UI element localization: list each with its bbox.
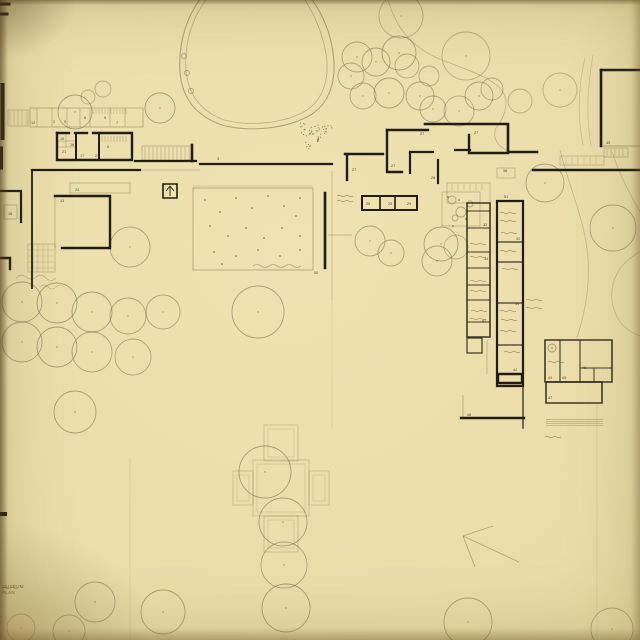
tree-center-dot bbox=[390, 252, 391, 253]
room-number-label: 21 bbox=[62, 150, 66, 154]
room-number-label: 46 bbox=[582, 366, 586, 370]
tree-center-dot bbox=[611, 628, 612, 629]
stipple-dot bbox=[311, 127, 312, 128]
pencil-rect bbox=[313, 475, 325, 501]
stipple-dot bbox=[327, 125, 328, 126]
annotations-layer: 1229897191821172362413163272727272826252… bbox=[2, 116, 610, 589]
pencil-rect bbox=[233, 471, 253, 505]
stipple-dot bbox=[311, 131, 312, 132]
pencil-path bbox=[180, 0, 334, 129]
room-number-label: 44 bbox=[548, 376, 552, 380]
handwritten-note bbox=[470, 280, 486, 282]
stipple-dot bbox=[324, 126, 325, 127]
room-number-label: 17 bbox=[80, 154, 84, 158]
stipple-dot bbox=[323, 129, 324, 130]
room-number-label: 51 bbox=[504, 195, 508, 199]
tree-center-dot bbox=[362, 95, 363, 96]
tree-center-dot bbox=[68, 630, 69, 631]
room-number-label: 24 bbox=[75, 188, 79, 192]
pencil-rect bbox=[268, 520, 294, 548]
building-wall bbox=[0, 191, 21, 222]
pencil-rect bbox=[604, 148, 628, 157]
room-number-label: 50 bbox=[314, 271, 318, 275]
tree-center-dot bbox=[375, 61, 376, 62]
room-number-label: 27 bbox=[391, 164, 395, 168]
building-wall bbox=[0, 258, 10, 269]
room-number-label: 27 bbox=[420, 132, 424, 136]
room-number-label: 23 bbox=[95, 154, 99, 158]
building-walls-layer bbox=[0, 4, 640, 514]
pencil-path bbox=[253, 265, 301, 268]
tree-center-dot bbox=[74, 111, 75, 112]
room-number-label: 44 bbox=[515, 302, 519, 306]
interior-wall bbox=[545, 340, 612, 382]
handwritten-note bbox=[471, 310, 487, 312]
handwritten-note bbox=[504, 351, 520, 353]
stipple-dot bbox=[318, 127, 319, 128]
building-wall bbox=[469, 135, 508, 153]
stipple-dot bbox=[325, 128, 326, 129]
room-number-label: 3 bbox=[217, 157, 219, 161]
stipple-dot bbox=[309, 134, 310, 135]
plaza-dot bbox=[458, 199, 460, 201]
stipple-dot bbox=[317, 139, 318, 140]
room-number-label: 18 bbox=[70, 143, 74, 147]
handwritten-note bbox=[548, 361, 564, 363]
tree-circle bbox=[379, 0, 423, 38]
plaza-dot bbox=[279, 255, 281, 257]
tree-center-dot bbox=[257, 311, 258, 312]
pencil-path bbox=[186, 0, 327, 123]
plaza-dot bbox=[219, 211, 221, 213]
pencil-rect bbox=[193, 188, 313, 270]
plaza-dot bbox=[299, 249, 301, 251]
tree-center-dot bbox=[264, 471, 265, 472]
tree-center-dot bbox=[398, 52, 399, 53]
tree-center-dot bbox=[91, 311, 92, 312]
tree-center-dot bbox=[56, 302, 57, 303]
pencil-line bbox=[463, 526, 493, 536]
pencil-rect bbox=[560, 156, 604, 165]
site-plan-drawing: 1229897191821172362413163272727272826252… bbox=[0, 0, 640, 640]
stipple-dot bbox=[318, 136, 319, 137]
tree-circle bbox=[452, 215, 458, 221]
tree-center-dot bbox=[465, 55, 466, 56]
pencil-path bbox=[16, 275, 56, 280]
room-number-label: 6 bbox=[107, 145, 109, 149]
pencil-rect bbox=[268, 429, 294, 457]
handwritten-note bbox=[500, 310, 516, 312]
building-wall bbox=[425, 124, 537, 152]
pencil-rect bbox=[142, 146, 192, 160]
stipple-dot bbox=[301, 132, 302, 133]
handwritten-note bbox=[500, 220, 516, 222]
tree-center-dot bbox=[544, 182, 545, 183]
stipple-dot bbox=[309, 130, 310, 131]
plaza-dot bbox=[299, 235, 301, 237]
room-number-label: 48 bbox=[467, 413, 471, 417]
plaza-dot bbox=[263, 237, 265, 239]
room-number-label: 8 bbox=[84, 116, 86, 120]
pencil-path bbox=[612, 152, 640, 212]
tree-circle bbox=[444, 598, 492, 640]
plaza-dot bbox=[267, 195, 269, 197]
tree-center-dot bbox=[350, 75, 351, 76]
stipple-dot bbox=[309, 146, 310, 147]
plaza-dot bbox=[281, 227, 283, 229]
handwritten-note bbox=[502, 268, 518, 270]
tree-center-dot bbox=[285, 607, 286, 608]
interior-wall bbox=[467, 338, 482, 353]
handwritten-note bbox=[500, 212, 516, 214]
stipple-dot bbox=[318, 124, 319, 125]
handwritten-note bbox=[545, 436, 561, 438]
stipple-dot bbox=[316, 130, 317, 131]
room-number-label: 16 bbox=[8, 212, 12, 216]
tree-circle bbox=[395, 54, 419, 78]
plaza-dot bbox=[235, 255, 237, 257]
tree-center-dot bbox=[162, 611, 163, 612]
plaza-dot bbox=[213, 251, 215, 253]
tree-center-dot bbox=[400, 15, 401, 16]
building-wall bbox=[498, 374, 522, 383]
plaza-dot bbox=[227, 235, 229, 237]
room-number-label: 7 bbox=[116, 121, 118, 125]
stipple-dot bbox=[303, 123, 304, 124]
handwritten-note bbox=[526, 307, 542, 309]
building-wall bbox=[497, 201, 523, 386]
stipple-dot bbox=[310, 133, 311, 134]
stipple-dot bbox=[320, 137, 321, 138]
tree-center-dot bbox=[127, 315, 128, 316]
tree-center-dot bbox=[440, 243, 441, 244]
tree-circle bbox=[444, 235, 468, 259]
room-number-label: 45 bbox=[562, 376, 566, 380]
tree-circle bbox=[419, 66, 439, 86]
stipple-dot bbox=[330, 125, 331, 126]
handwritten-note bbox=[500, 250, 516, 252]
room-number-label: 2 bbox=[53, 120, 55, 124]
tree-center-dot bbox=[74, 411, 75, 412]
stipple-dot bbox=[311, 132, 312, 133]
stipple-dot bbox=[317, 141, 318, 142]
room-number-label: 42 bbox=[513, 368, 517, 372]
pencil-rect bbox=[447, 183, 490, 203]
pencil-rect bbox=[309, 471, 329, 505]
tree-circle bbox=[185, 71, 190, 76]
stipple-dot bbox=[306, 146, 307, 147]
plaza-dot bbox=[221, 263, 223, 265]
tree-center-dot bbox=[162, 311, 163, 312]
room-number-label: 25 bbox=[388, 202, 392, 206]
room-number-label: 28 bbox=[431, 176, 435, 180]
handwritten-note bbox=[337, 195, 353, 197]
tree-center-dot bbox=[129, 246, 130, 247]
interior-wall bbox=[546, 382, 602, 403]
room-number-label: 36 bbox=[503, 169, 507, 173]
handwritten-note bbox=[337, 200, 353, 202]
tree-center-dot bbox=[283, 564, 284, 565]
tree-center-dot bbox=[56, 346, 57, 347]
tree-center-dot bbox=[467, 621, 468, 622]
tree-center-dot bbox=[91, 351, 92, 352]
room-number-label: 13 bbox=[60, 199, 64, 203]
plaza-dot bbox=[257, 249, 259, 251]
tree-center-dot bbox=[21, 301, 22, 302]
handwritten-note bbox=[501, 319, 517, 321]
stipple-dot bbox=[314, 126, 315, 127]
tree-circle bbox=[95, 81, 111, 97]
room-number-label: 19 bbox=[60, 137, 64, 141]
room-number-label: 32 bbox=[483, 223, 487, 227]
tree-circle bbox=[53, 615, 85, 640]
stipple-dot bbox=[322, 126, 323, 127]
tree-circle bbox=[467, 201, 473, 207]
room-number-label: 9 bbox=[104, 116, 106, 120]
tree-circle bbox=[7, 614, 35, 640]
stipple-dot bbox=[305, 142, 306, 143]
tree-center-dot bbox=[612, 227, 613, 228]
tree-center-dot bbox=[159, 107, 160, 108]
room-number-label: 29 bbox=[407, 202, 411, 206]
title-block: MUSEUM PLAN bbox=[2, 584, 24, 596]
plaza-dot bbox=[235, 197, 237, 199]
handwritten-note bbox=[526, 299, 542, 301]
pencil-rect bbox=[264, 516, 298, 552]
tree-center-dot bbox=[388, 92, 389, 93]
tree-center-dot bbox=[419, 95, 420, 96]
title-line-2: PLAN bbox=[2, 590, 24, 596]
pencil-path bbox=[560, 150, 588, 338]
pencil-rect bbox=[257, 464, 305, 512]
plaza-dot bbox=[452, 225, 454, 227]
room-number-label: 47 bbox=[548, 396, 552, 400]
tree-center-dot bbox=[94, 601, 95, 602]
handwritten-note bbox=[470, 243, 486, 245]
stipple-dot bbox=[312, 133, 313, 134]
plaza-dot bbox=[245, 227, 247, 229]
plaza-dot bbox=[251, 207, 253, 209]
handwritten-note bbox=[501, 232, 517, 234]
room-number-label: 27 bbox=[352, 168, 356, 172]
tree-circle bbox=[508, 89, 532, 113]
trees-layer bbox=[2, 0, 636, 640]
plaza-dot bbox=[299, 197, 301, 199]
room-number-label: 45 bbox=[606, 141, 610, 145]
stipple-dot bbox=[303, 134, 304, 135]
pencil-path bbox=[579, 58, 585, 145]
stipple-dot bbox=[301, 126, 302, 127]
pencil-path bbox=[388, 0, 510, 151]
stipple-dot bbox=[308, 144, 309, 145]
tree-center-dot bbox=[132, 356, 133, 357]
tree-center-dot bbox=[559, 89, 560, 90]
stipple-dot bbox=[324, 133, 325, 134]
room-number-label: 9 bbox=[64, 120, 66, 124]
room-number-label: 26 bbox=[366, 202, 370, 206]
plaza-dot bbox=[551, 347, 553, 349]
stipple-dot bbox=[300, 126, 301, 127]
scanned-site-plan: 1229897191821172362413163272727272826252… bbox=[0, 0, 640, 640]
stipple-dot bbox=[306, 135, 307, 136]
room-number-label: 27 bbox=[474, 131, 478, 135]
stipple-dot bbox=[319, 128, 320, 129]
tree-circle bbox=[456, 207, 466, 217]
room-number-label: 30 bbox=[516, 237, 520, 241]
tree-center-dot bbox=[458, 110, 459, 111]
building-wall bbox=[55, 196, 110, 248]
stipple-dot bbox=[304, 124, 305, 125]
pencil-rect bbox=[237, 475, 249, 501]
stipple-dot bbox=[300, 123, 301, 124]
tree-center-dot bbox=[21, 341, 22, 342]
tree-center-dot bbox=[478, 95, 479, 96]
plaza-dot bbox=[283, 205, 285, 207]
stipple-dot bbox=[331, 127, 332, 128]
plaza-dot bbox=[204, 199, 206, 201]
pencil-path bbox=[166, 186, 174, 196]
pencil-path bbox=[612, 252, 640, 336]
stipple-dot bbox=[308, 148, 309, 149]
tree-center-dot bbox=[20, 627, 21, 628]
handwritten-note bbox=[500, 330, 516, 332]
plaza-dot bbox=[209, 225, 211, 227]
tree-center-dot bbox=[369, 240, 370, 241]
stipple-dot bbox=[304, 129, 305, 130]
tree-center-dot bbox=[282, 521, 283, 522]
pencil-rect bbox=[253, 460, 309, 516]
stipple-dot bbox=[326, 131, 327, 132]
tree-center-dot bbox=[432, 108, 433, 109]
pencil-rect bbox=[264, 425, 298, 461]
tree-center-dot bbox=[436, 260, 437, 261]
pencil-path bbox=[588, 55, 593, 146]
plaza-dot bbox=[295, 215, 297, 217]
tree-center-dot bbox=[356, 56, 357, 57]
room-number-label: 12 bbox=[31, 121, 35, 125]
stipple-dot bbox=[320, 133, 321, 134]
handwritten-note bbox=[470, 290, 486, 292]
